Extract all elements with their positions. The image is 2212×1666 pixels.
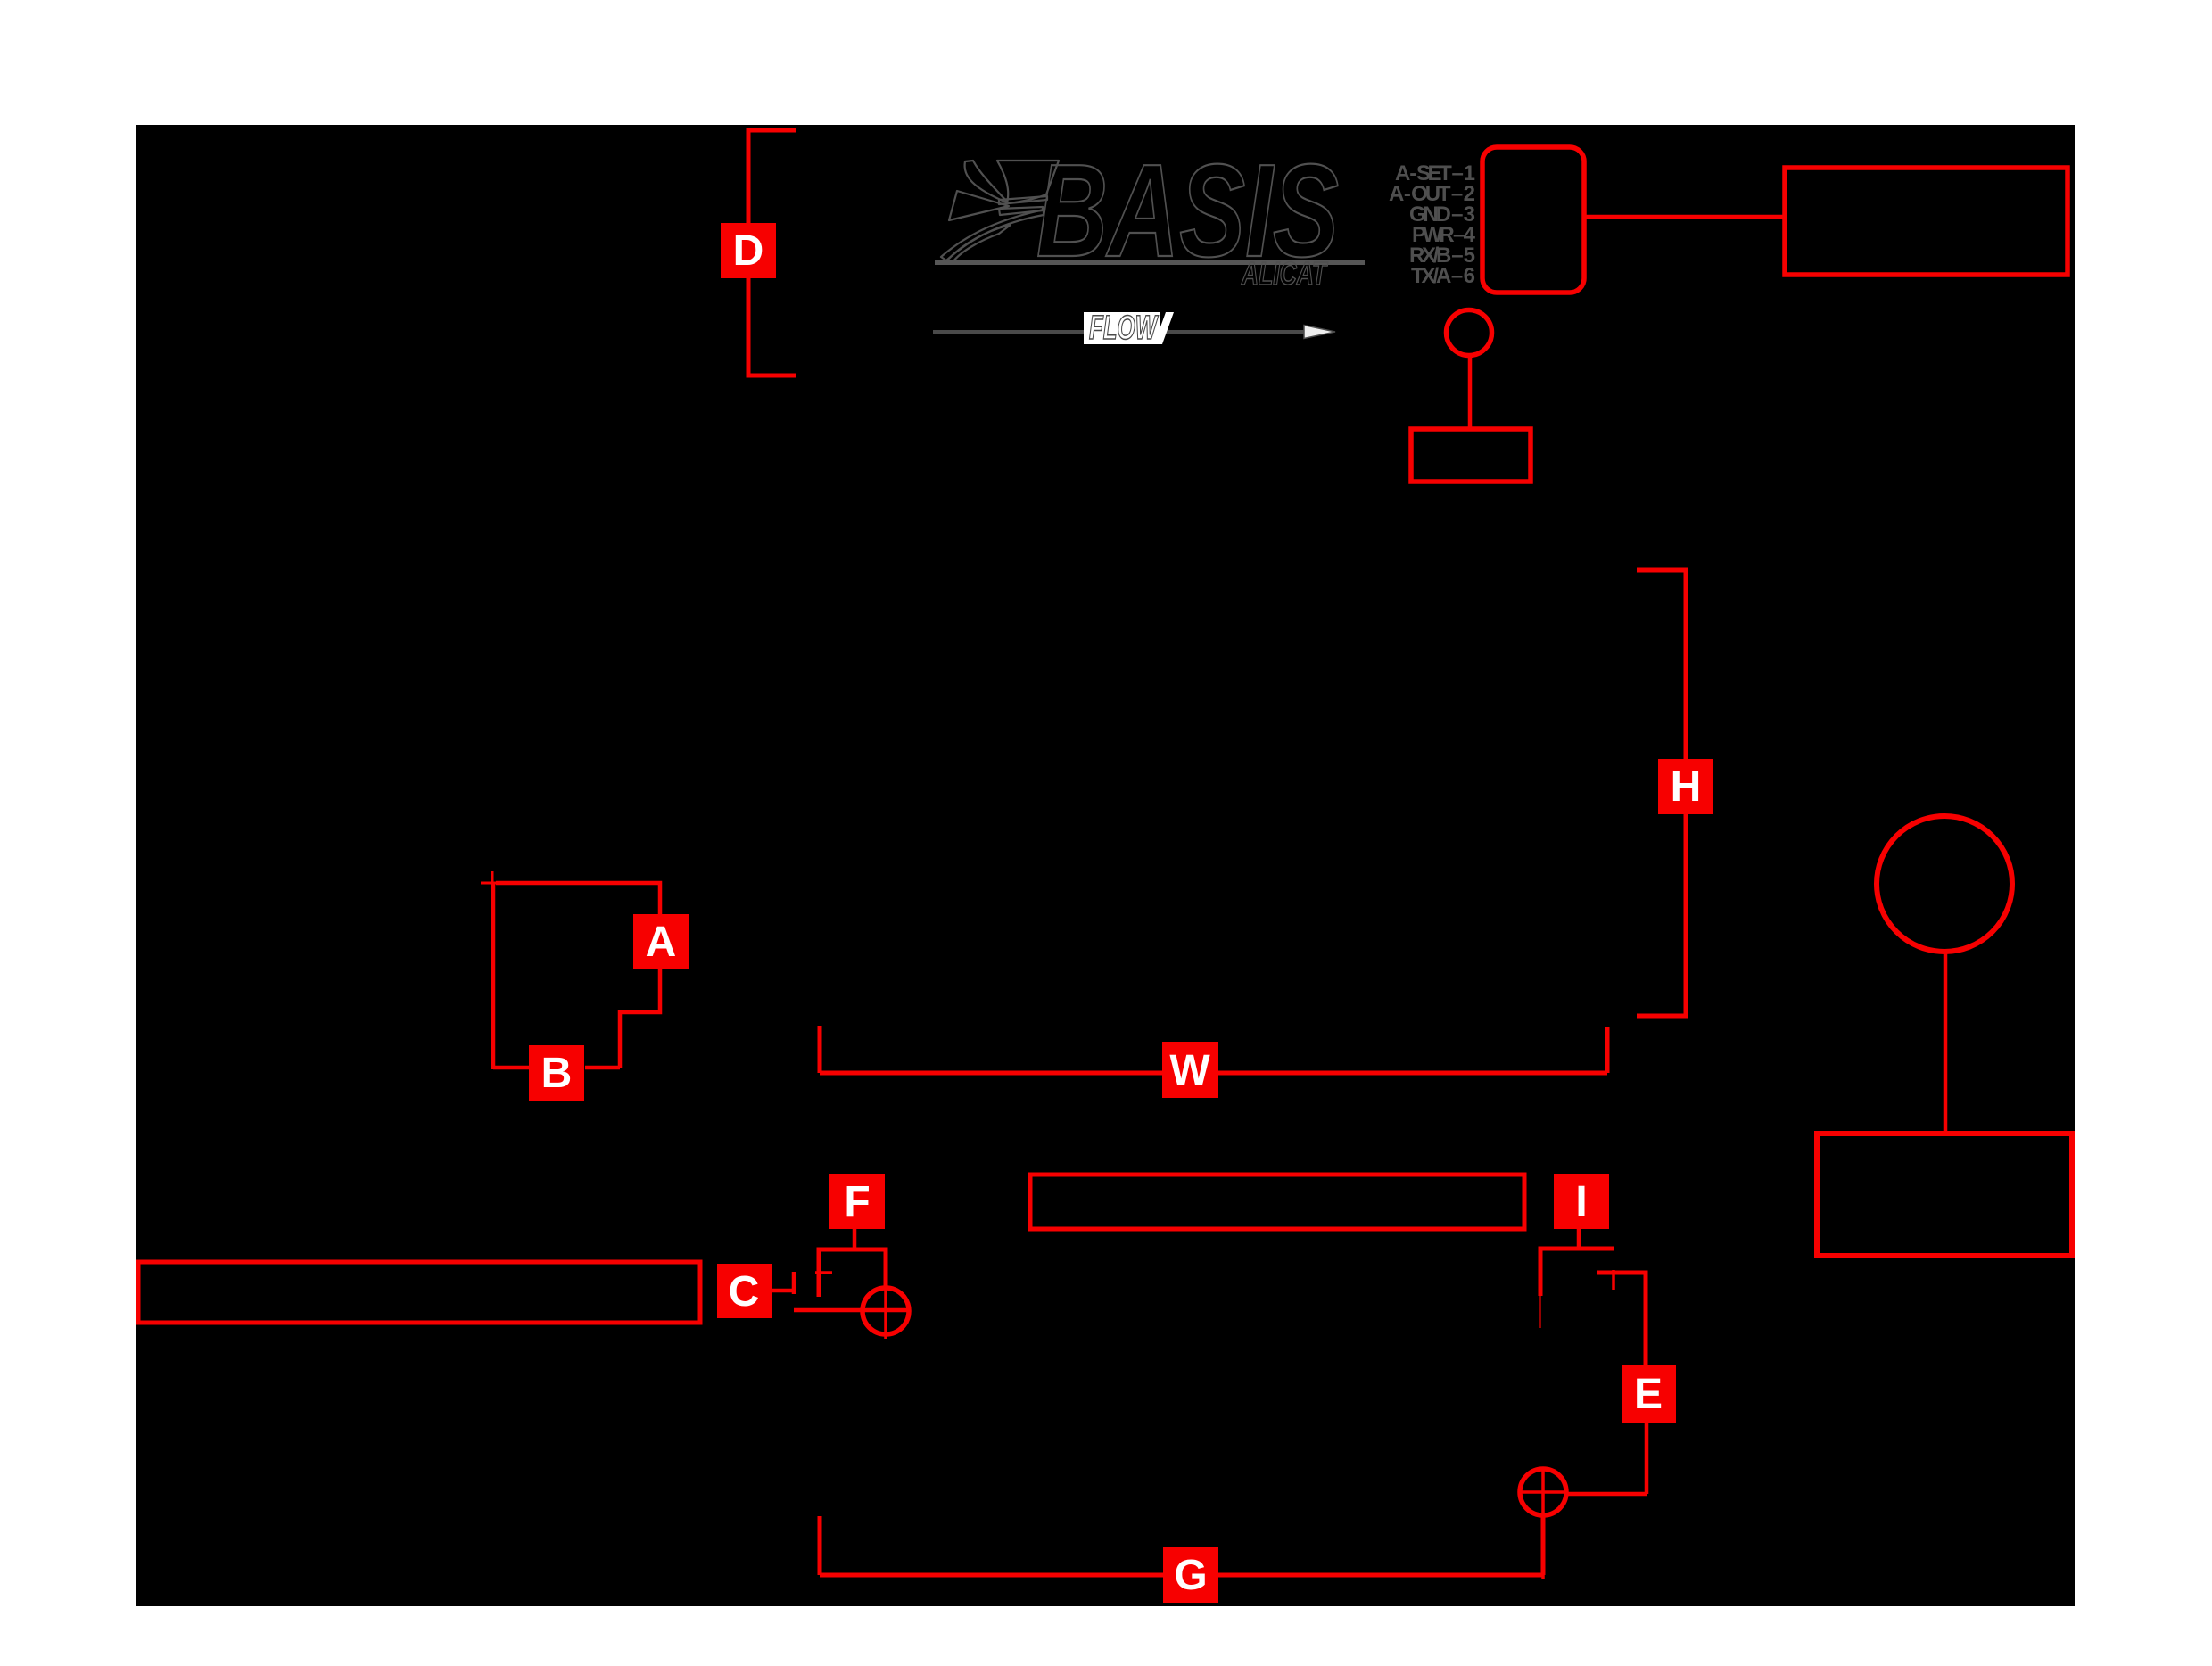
svg-text:G: G xyxy=(1174,1552,1207,1599)
svg-text:H: H xyxy=(1671,763,1702,811)
svg-text:I: I xyxy=(1575,1178,1587,1225)
svg-text:FLOW: FLOW xyxy=(1089,309,1159,347)
svg-text:ALICAT: ALICAT xyxy=(1241,255,1328,292)
svg-text:W: W xyxy=(1169,1047,1210,1094)
svg-text:TX/A – 6: TX/A – 6 xyxy=(1411,264,1475,288)
svg-text:C: C xyxy=(729,1268,760,1315)
svg-text:D: D xyxy=(733,227,764,275)
svg-text:F: F xyxy=(844,1178,870,1225)
svg-text:B: B xyxy=(541,1050,573,1097)
svg-text:E: E xyxy=(1634,1371,1663,1418)
svg-text:A: A xyxy=(646,919,677,966)
